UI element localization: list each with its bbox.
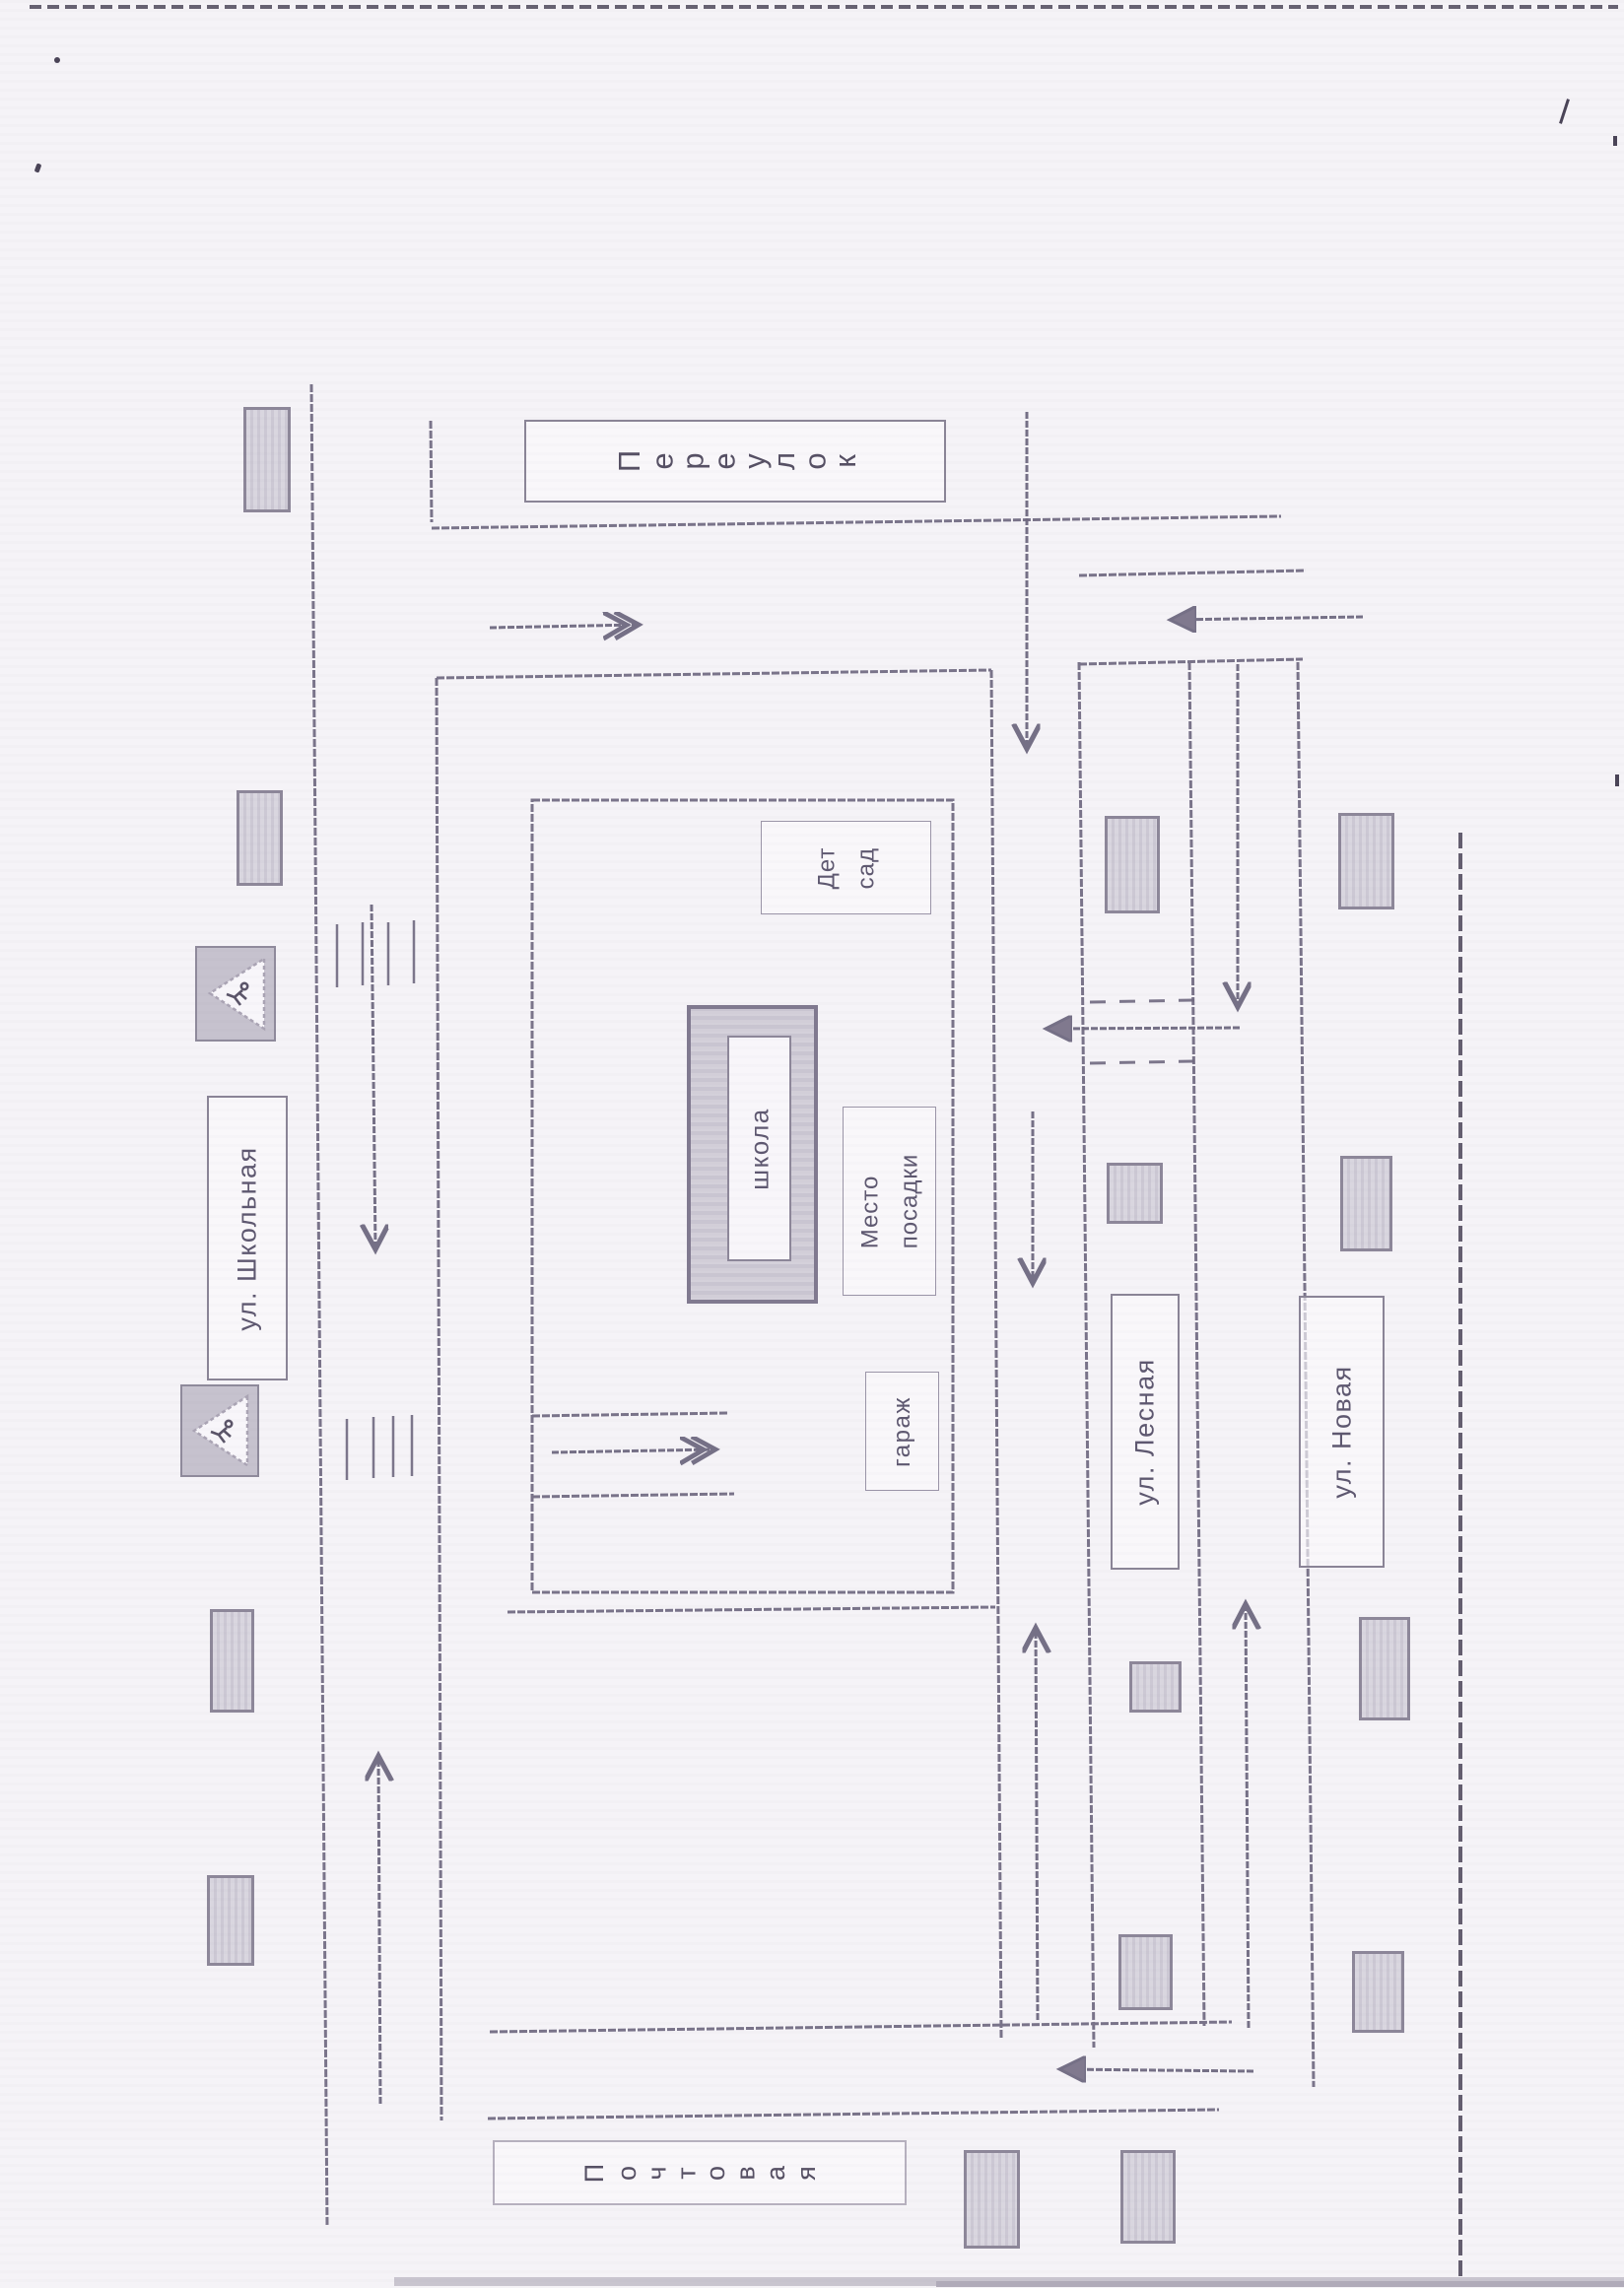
boarding-point-label: Место посадки	[850, 1154, 928, 1249]
kindergarten-label: Дет сад	[807, 846, 885, 889]
street-label-lesnaya-text: ул. Лесная	[1130, 1358, 1161, 1505]
route-arrow-east	[490, 625, 639, 628]
school-building-inner: школа	[727, 1036, 791, 1261]
road-pereulok-south-edge	[432, 516, 1281, 528]
kindergarten-box: Дет сад	[761, 821, 931, 914]
house	[210, 1609, 254, 1713]
house	[1105, 816, 1160, 913]
street-label-lesnaya: ул. Лесная	[1111, 1294, 1180, 1570]
street-label-shkolnaya: ул. Школьная	[207, 1096, 288, 1380]
road-top-right-edge	[1079, 571, 1306, 575]
route-arrow-west-pochtovaya	[1062, 2069, 1253, 2071]
block-bottom-edge	[507, 1607, 995, 1612]
street-label-novaya-text: ул. Новая	[1326, 1365, 1357, 1498]
house	[1129, 1661, 1182, 1713]
house	[1359, 1617, 1410, 1720]
street-label-pochtovaya: Почтовая	[493, 2140, 907, 2205]
block-east-edge	[991, 670, 1001, 2038]
pedestrian-crossing-sign-icon	[180, 1384, 259, 1477]
house	[237, 790, 283, 886]
driveway-south-edge	[532, 1494, 734, 1497]
route-arrow-west-middle	[1049, 1028, 1240, 1029]
house	[1118, 1934, 1173, 2010]
route-arrow-west-top	[1173, 617, 1363, 620]
street-label-pochtovaya-text: Почтовая	[495, 2142, 905, 2203]
school-label: школа	[744, 1108, 775, 1190]
street-label-pereulok-text: Переулок	[526, 422, 944, 501]
road-lesnaya-east-edge	[1189, 662, 1204, 2026]
route-arrow-up-shkolnaya	[378, 1756, 380, 2104]
route-arrow-up-novaya	[1246, 1604, 1249, 2028]
house	[1352, 1951, 1404, 2033]
road-corner-upper	[431, 421, 432, 522]
house	[1120, 2150, 1176, 2244]
street-label-shkolnaya-text: ул. Школьная	[233, 1146, 263, 1330]
road-lesnaya-west-edge	[1079, 662, 1094, 2048]
block-west-edge	[437, 678, 441, 2120]
garage-box: гараж	[865, 1372, 939, 1491]
house	[1107, 1163, 1163, 1224]
pedestrian-crossing-sign-icon	[195, 946, 276, 1042]
driveway-north-edge	[532, 1413, 729, 1416]
road-pochtovaya-south-edge	[488, 2110, 1219, 2119]
house	[207, 1875, 254, 1966]
garage-label: гараж	[889, 1396, 916, 1467]
dashed-crossing-line	[1090, 1061, 1194, 1063]
house	[1338, 813, 1394, 909]
scanned-route-scheme-page: Переулок Почтовая ул. Школьная ул. Лесна…	[0, 0, 1624, 2288]
house	[1340, 1156, 1392, 1251]
road-pochtovaya-north-edge	[490, 2022, 1232, 2032]
street-label-pereulok: Переулок	[524, 420, 946, 503]
road-shkolnaya-west-edge	[311, 384, 327, 2225]
block-top-edge	[437, 670, 991, 678]
route-arrow-down-shkolnaya	[372, 905, 375, 1249]
dashed-crossing-line	[1090, 1000, 1194, 1002]
boarding-point-box: Место посадки	[843, 1107, 936, 1296]
route-arrow-up-middle	[1036, 1628, 1038, 2020]
street-label-novaya: ул. Новая	[1299, 1296, 1385, 1568]
house	[243, 407, 291, 512]
route-arrow-driveway	[552, 1449, 715, 1452]
house	[964, 2150, 1020, 2249]
